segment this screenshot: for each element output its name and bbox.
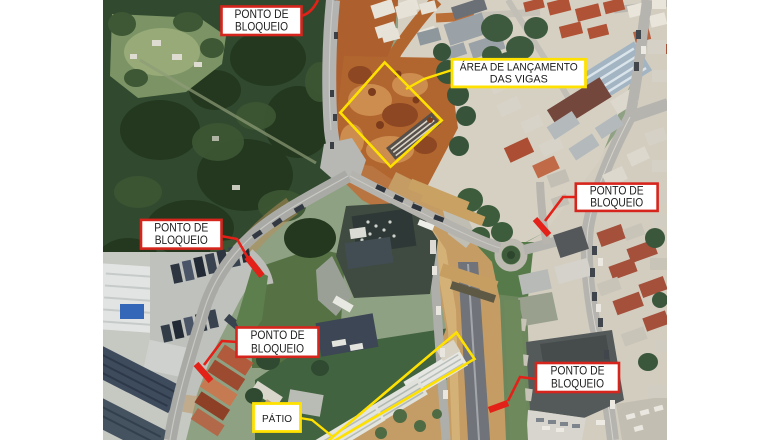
svg-text:BLOQUEIO: BLOQUEIO — [551, 378, 604, 391]
svg-text:PONTO DE: PONTO DE — [154, 221, 208, 234]
svg-text:DAS VIGAS: DAS VIGAS — [490, 74, 548, 86]
svg-text:BLOQUEIO: BLOQUEIO — [251, 342, 304, 355]
svg-text:PONTO DE: PONTO DE — [590, 185, 644, 198]
svg-text:PÁTIO: PÁTIO — [262, 412, 292, 425]
svg-text:ÁREA DE LANÇAMENTO: ÁREA DE LANÇAMENTO — [460, 60, 578, 73]
svg-text:BLOQUEIO: BLOQUEIO — [235, 21, 288, 34]
svg-text:BLOQUEIO: BLOQUEIO — [155, 234, 208, 247]
svg-text:PONTO DE: PONTO DE — [251, 329, 305, 342]
svg-text:BLOQUEIO: BLOQUEIO — [590, 197, 643, 210]
svg-text:PONTO DE: PONTO DE — [551, 365, 605, 378]
svg-text:PONTO DE: PONTO DE — [235, 8, 289, 21]
